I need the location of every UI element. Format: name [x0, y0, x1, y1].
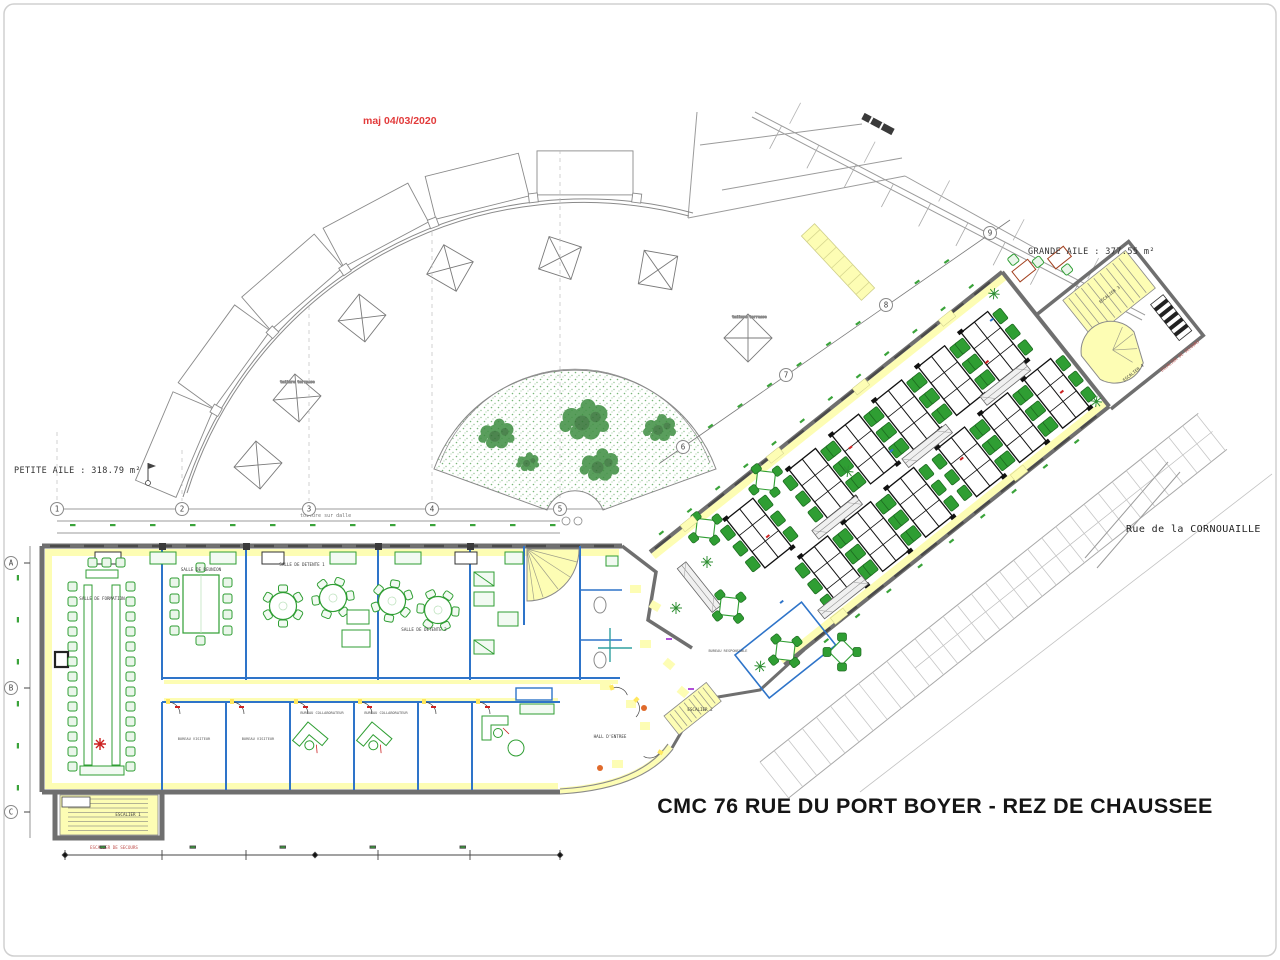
dimension-tick	[550, 524, 556, 526]
chair	[126, 747, 135, 756]
escalier-1: ESCALIER 1	[60, 795, 158, 835]
dimension-tick	[460, 846, 466, 848]
grid-bubble-5: 5	[554, 503, 567, 516]
room-label: BUREAU COLLABORATEUR	[364, 711, 408, 715]
svg-text:1: 1	[55, 505, 60, 514]
chair	[68, 672, 77, 681]
svg-text:7: 7	[784, 371, 789, 380]
alarm-dot	[597, 765, 603, 771]
corridor-bench	[516, 688, 552, 700]
svg-text:A: A	[9, 559, 14, 568]
room-label: SALLE DE REUNION	[181, 567, 222, 572]
chair	[88, 558, 97, 567]
dimension-tick	[430, 524, 436, 526]
room-label: BUREAU COLLABORATEUR	[300, 711, 344, 715]
roof-label: toiture terrasse	[280, 380, 315, 384]
side-table	[342, 630, 370, 647]
chair	[126, 627, 135, 636]
chair	[126, 612, 135, 621]
stair-label: ESCALIER 2	[687, 707, 713, 712]
chair	[68, 717, 77, 726]
dimension-tick	[17, 701, 19, 707]
chair	[102, 558, 111, 567]
room-label: BUREAU VISITEUR	[242, 737, 275, 741]
chair	[126, 597, 135, 606]
chair	[126, 582, 135, 591]
grid-bubble-6: 6	[677, 441, 690, 454]
alarm-dot	[641, 705, 647, 711]
svg-text:3: 3	[307, 505, 312, 514]
room-label: BUREAU RESPONSABLE	[709, 649, 748, 653]
revision-note: maj 04/03/2020	[363, 115, 437, 127]
svg-text:6: 6	[681, 443, 686, 452]
chair	[68, 702, 77, 711]
side-round-table	[508, 740, 524, 756]
svg-text:C: C	[9, 808, 14, 817]
dimension-tick	[17, 575, 19, 581]
grid-bubble-4: 4	[426, 503, 439, 516]
chair	[68, 642, 77, 651]
dimension-tick	[370, 846, 376, 848]
dimension-tick	[510, 524, 516, 526]
drawing-title: CMC 76 RUE DU PORT BOYER - REZ DE CHAUSS…	[657, 794, 1213, 818]
dimension-tick	[110, 524, 116, 526]
room-label: SALLE DE DETENTE 2	[401, 627, 447, 632]
grid-bubble-A: A	[5, 557, 18, 570]
room-label: SALLE DE FORMATION	[79, 596, 125, 601]
svg-text:4: 4	[430, 505, 435, 514]
chair	[126, 732, 135, 741]
chair	[126, 762, 135, 771]
grid-bubble-8: 8	[880, 299, 893, 312]
floor-plan-drawing: toiture terrasse toiture terrasse toitur…	[0, 0, 1280, 960]
dimension-tick	[17, 659, 19, 665]
low-cabinet	[80, 766, 124, 775]
svg-text:B: B	[9, 684, 14, 693]
chair	[223, 626, 232, 635]
svg-text:9: 9	[988, 229, 993, 238]
dimension-tick	[190, 524, 196, 526]
dimension-tick	[100, 846, 106, 848]
chair	[126, 672, 135, 681]
grande-aile-label: GRANDE AILE : 377.55 m²	[1028, 247, 1155, 257]
dimension-tick	[310, 524, 316, 526]
chair	[68, 597, 77, 606]
dimension-tick	[17, 617, 19, 623]
chair	[68, 732, 77, 741]
roof-label: toiture terrasse	[732, 315, 767, 319]
chair	[170, 578, 179, 587]
chair	[170, 594, 179, 603]
dimension-tick	[390, 524, 396, 526]
chair	[126, 657, 135, 666]
dimension-tick	[70, 524, 76, 526]
grid-bubble-2: 2	[176, 503, 189, 516]
skylight-icon	[638, 250, 677, 289]
room-label: SALLE DE DETENTE 1	[279, 562, 325, 567]
chair	[196, 636, 205, 645]
grid-bubble-9: 9	[984, 227, 997, 240]
room-label: BUREAU VISITEUR	[178, 737, 211, 741]
chair	[223, 610, 232, 619]
stair-label: ESCALIER 1	[115, 812, 141, 817]
dimension-tick	[17, 743, 19, 749]
grid-bubble-B: B	[5, 682, 18, 695]
chair	[126, 642, 135, 651]
svg-text:5: 5	[558, 505, 563, 514]
chair	[68, 657, 77, 666]
grid-bubble-7: 7	[780, 369, 793, 382]
street-label: Rue de la CORNOUAILLE	[1126, 524, 1261, 535]
chair	[223, 594, 232, 603]
svg-text:2: 2	[180, 505, 185, 514]
chair	[68, 687, 77, 696]
grid-bubble-1: 1	[51, 503, 64, 516]
shelf	[520, 704, 554, 714]
dimension-tick	[17, 785, 19, 791]
hall-label: HALL D'ENTREE	[594, 734, 627, 739]
side-table	[347, 610, 369, 624]
chair	[223, 578, 232, 587]
chair	[68, 627, 77, 636]
grid-bubble-C: C	[5, 806, 18, 819]
chair	[126, 717, 135, 726]
dimension-tick	[150, 524, 156, 526]
svg-text:8: 8	[884, 301, 889, 310]
chair	[68, 582, 77, 591]
chair	[126, 687, 135, 696]
chair	[68, 612, 77, 621]
dimension-tick	[470, 524, 476, 526]
secours-label: ESCALIER DE SECOURS	[90, 845, 138, 850]
dimension-tick	[230, 524, 236, 526]
dimension-tick	[280, 846, 286, 848]
dimension-tick	[270, 524, 276, 526]
dimension-tick	[350, 524, 356, 526]
chair	[116, 558, 125, 567]
grid-bubble-3: 3	[303, 503, 316, 516]
chair	[126, 702, 135, 711]
chair	[170, 610, 179, 619]
petite-aile-label: PETITE AILE : 318.79 m²	[14, 466, 141, 476]
chair	[68, 762, 77, 771]
chair	[170, 626, 179, 635]
chair	[68, 747, 77, 756]
canopy-panel	[537, 151, 633, 195]
dimension-tick	[190, 846, 196, 848]
